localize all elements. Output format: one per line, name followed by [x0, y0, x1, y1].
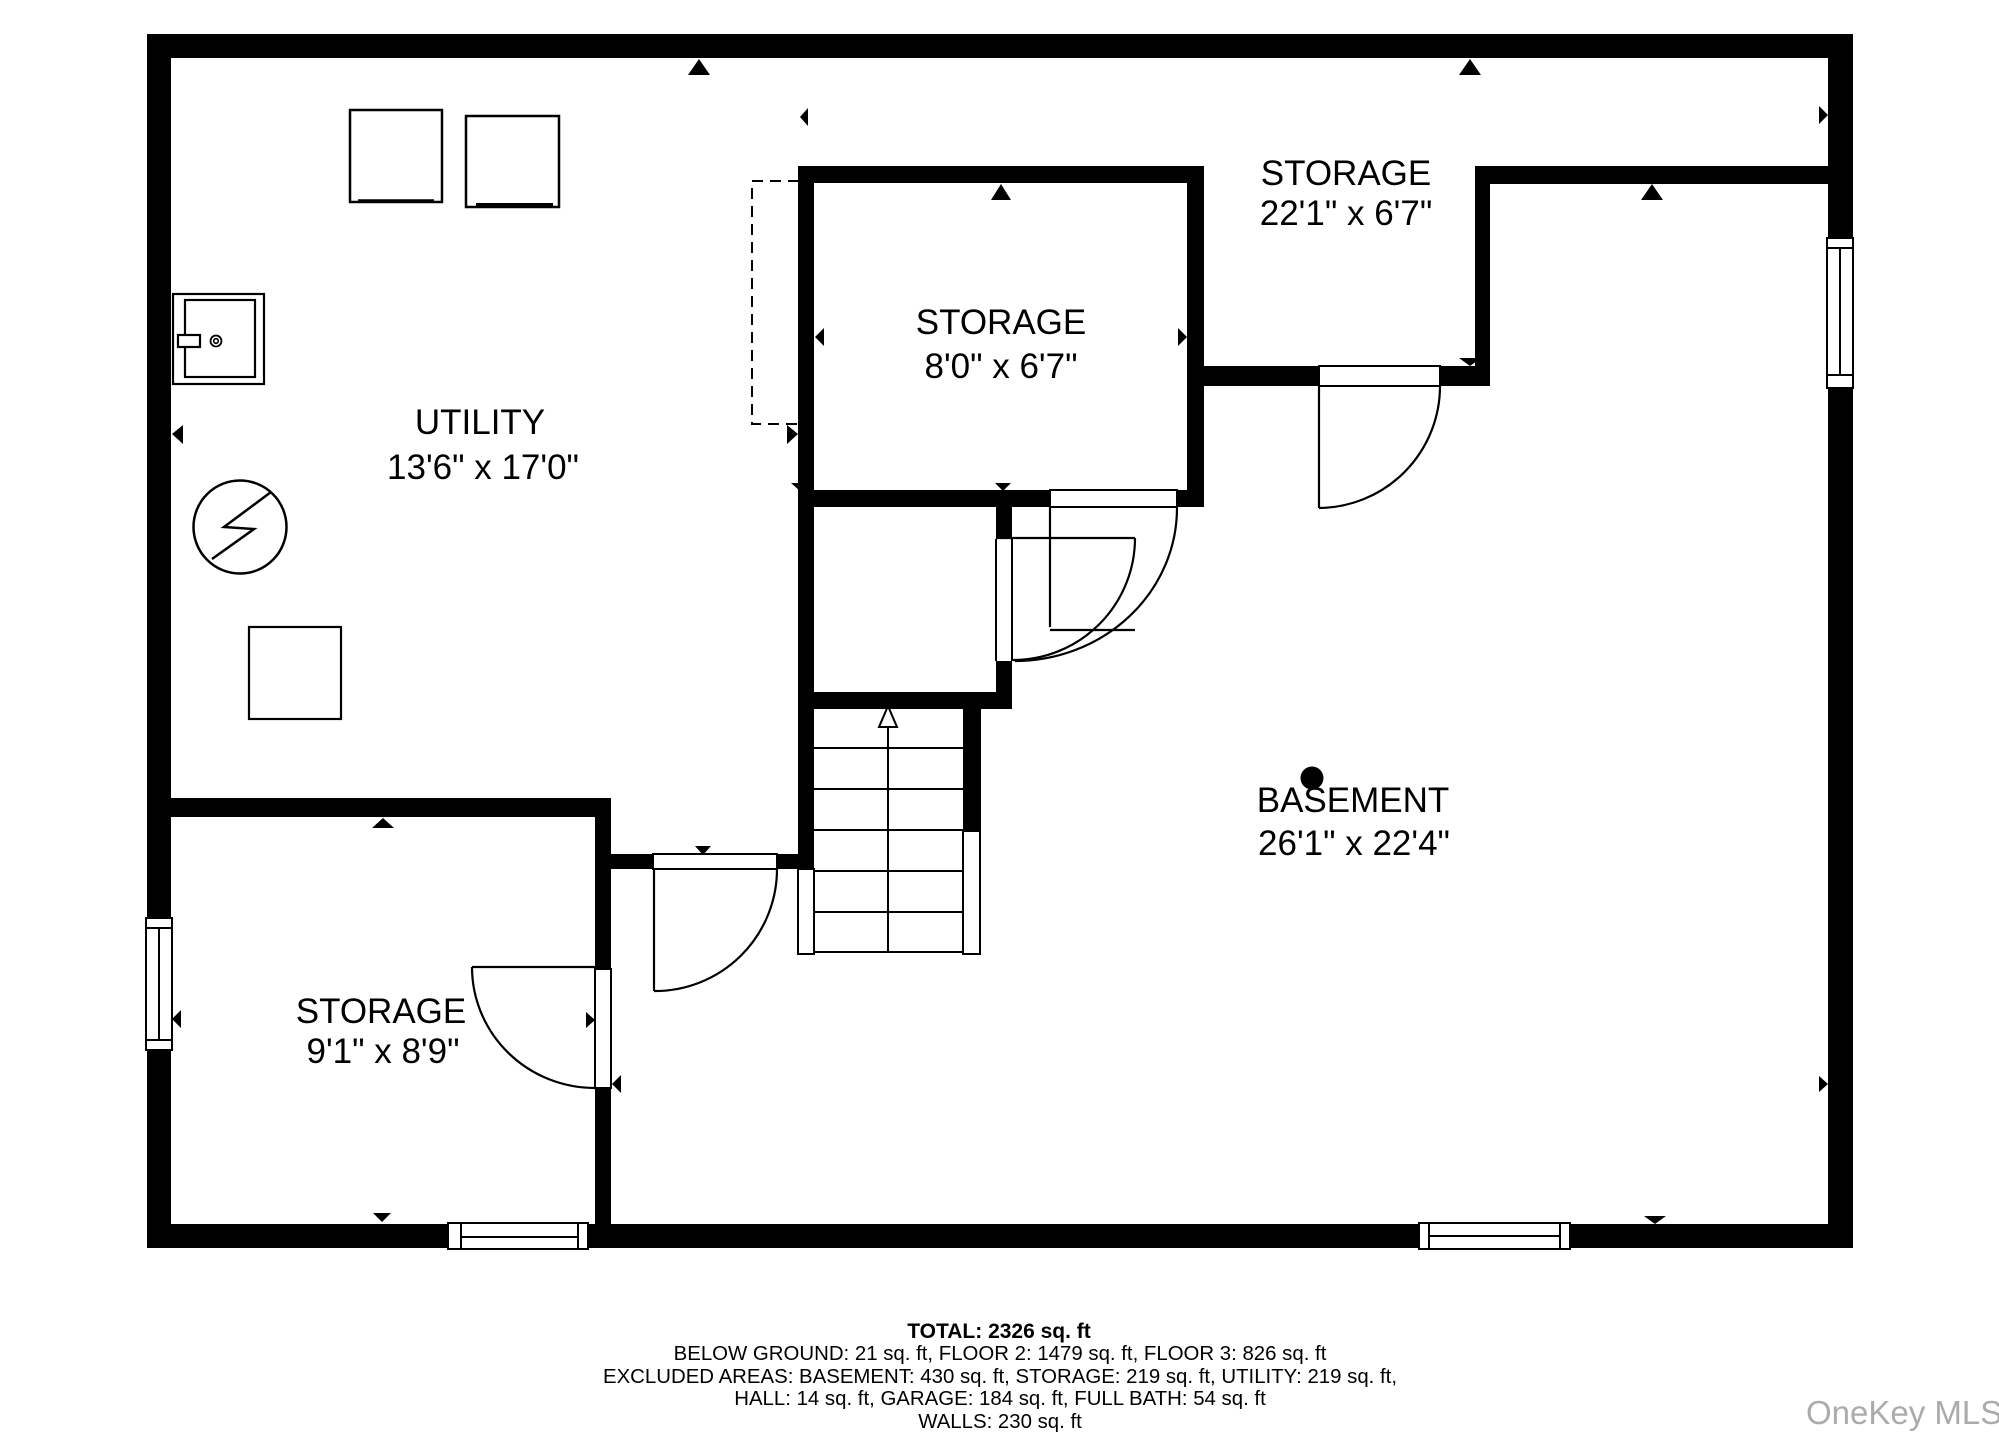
svg-text:UTILITY: UTILITY — [415, 403, 545, 442]
svg-text:STORAGE: STORAGE — [916, 303, 1087, 342]
svg-text:BELOW GROUND: 21 sq. ft, FLOOR: BELOW GROUND: 21 sq. ft, FLOOR 2: 1479 s… — [674, 1343, 1327, 1365]
svg-text:EXCLUDED AREAS: BASEMENT: 430: EXCLUDED AREAS: BASEMENT: 430 sq. ft, ST… — [603, 1366, 1397, 1388]
svg-text:26'1" x 22'4": 26'1" x 22'4" — [1258, 824, 1450, 863]
svg-text:8'0" x 6'7": 8'0" x 6'7" — [924, 347, 1077, 386]
svg-text:WALLS: 230 sq. ft: WALLS: 230 sq. ft — [918, 1411, 1082, 1433]
svg-text:TOTAL: 2326 sq. ft: TOTAL: 2326 sq. ft — [907, 1320, 1091, 1343]
svg-text:STORAGE: STORAGE — [296, 992, 467, 1031]
svg-text:9'1" x 8'9": 9'1" x 8'9" — [306, 1032, 459, 1071]
svg-text:OneKey MLS: OneKey MLS — [1806, 1394, 1999, 1431]
svg-text:STORAGE: STORAGE — [1261, 154, 1432, 193]
svg-text:13'6" x 17'0": 13'6" x 17'0" — [387, 448, 579, 487]
svg-text:BASEMENT: BASEMENT — [1257, 781, 1450, 820]
svg-text:22'1" x 6'7": 22'1" x 6'7" — [1260, 194, 1433, 233]
svg-text:HALL: 14 sq. ft, GARAGE: 184 s: HALL: 14 sq. ft, GARAGE: 184 sq. ft, FUL… — [734, 1388, 1266, 1410]
